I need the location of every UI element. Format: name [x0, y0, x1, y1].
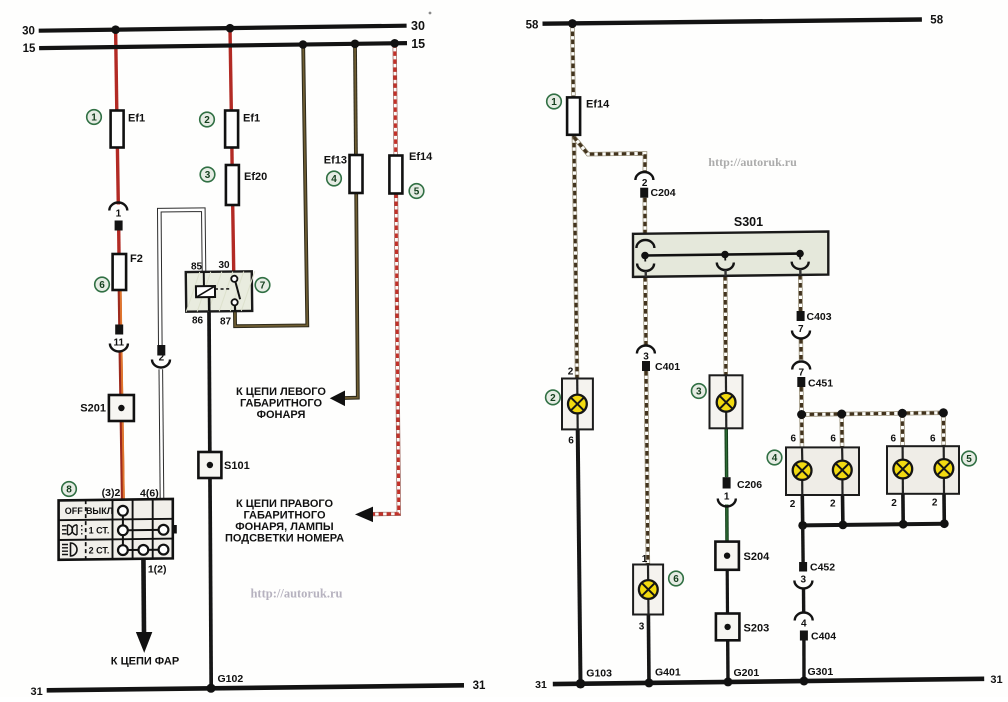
svg-text:3: 3	[205, 170, 211, 181]
svg-text:3: 3	[639, 622, 645, 633]
svg-text:2: 2	[550, 393, 556, 404]
svg-text:S101: S101	[224, 460, 250, 472]
svg-text:ГАБАРИТНОГО: ГАБАРИТНОГО	[243, 509, 325, 521]
svg-text:7: 7	[798, 324, 804, 335]
svg-text:ВЫКЛ: ВЫКЛ	[86, 506, 113, 516]
svg-text:S301: S301	[734, 215, 763, 229]
svg-text:C452: C452	[810, 562, 835, 574]
svg-text:2: 2	[932, 498, 938, 509]
svg-text:1: 1	[551, 97, 557, 108]
svg-text:15: 15	[411, 37, 425, 51]
svg-text:Ef20: Ef20	[244, 171, 267, 183]
svg-text:G103: G103	[586, 668, 612, 680]
svg-text:1: 1	[91, 113, 97, 124]
svg-text:К ЦЕПИ ЛЕВОГО: К ЦЕПИ ЛЕВОГО	[236, 386, 326, 398]
svg-text:Ef13: Ef13	[324, 155, 347, 167]
svg-text:1: 1	[116, 209, 122, 220]
svg-text:31: 31	[473, 680, 486, 692]
svg-text:6: 6	[99, 280, 105, 291]
svg-text:C451: C451	[808, 378, 833, 390]
svg-text:85: 85	[191, 262, 203, 273]
svg-text:G401: G401	[655, 667, 681, 679]
svg-text:5: 5	[414, 187, 420, 198]
svg-text:C404: C404	[811, 631, 836, 643]
svg-text:http://autoruk.ru: http://autoruk.ru	[708, 155, 797, 169]
svg-text:58: 58	[930, 15, 943, 27]
svg-text:1: 1	[724, 491, 730, 502]
svg-text:S204: S204	[744, 551, 771, 563]
svg-text:1: 1	[642, 554, 648, 565]
svg-text:http://autoruk.ru: http://autoruk.ru	[250, 587, 342, 601]
svg-text:3: 3	[643, 352, 649, 363]
svg-text:OFF: OFF	[65, 506, 83, 516]
svg-text:F2: F2	[130, 253, 143, 265]
svg-text:К ЦЕПИ ПРАВОГО: К ЦЕПИ ПРАВОГО	[236, 498, 334, 510]
svg-text:2: 2	[159, 353, 165, 364]
svg-text:Ef14: Ef14	[409, 151, 433, 163]
svg-text:31: 31	[30, 686, 42, 697]
svg-text:2: 2	[568, 366, 574, 377]
svg-text:К ЦЕПИ ФАР: К ЦЕПИ ФАР	[111, 656, 179, 668]
svg-text:G201: G201	[734, 667, 760, 679]
svg-text:6: 6	[673, 574, 679, 585]
svg-text:1 СТ.: 1 СТ.	[89, 526, 110, 536]
svg-text:87: 87	[220, 317, 232, 328]
svg-text:1(2): 1(2)	[148, 563, 167, 575]
svg-text:8: 8	[66, 485, 72, 496]
svg-text:ГАБАРИТНОГО: ГАБАРИТНОГО	[240, 397, 322, 409]
svg-text:86: 86	[192, 316, 204, 327]
svg-text:15: 15	[23, 43, 36, 55]
svg-text:C403: C403	[807, 311, 832, 323]
svg-text:11: 11	[114, 338, 125, 349]
svg-text:58: 58	[526, 19, 539, 31]
svg-text:5: 5	[966, 454, 972, 465]
svg-text:4: 4	[772, 453, 778, 464]
svg-text:4: 4	[801, 619, 807, 630]
svg-text:G301: G301	[808, 666, 834, 678]
svg-text:30: 30	[411, 19, 425, 33]
svg-text:C204: C204	[651, 187, 676, 199]
svg-text:ФОНАРЯ, ЛАМПЫ: ФОНАРЯ, ЛАМПЫ	[235, 521, 334, 533]
svg-text:2: 2	[891, 498, 897, 509]
svg-text:4: 4	[331, 174, 337, 185]
svg-text:2: 2	[830, 499, 836, 510]
svg-text:2: 2	[642, 178, 648, 189]
svg-text:6: 6	[830, 433, 836, 444]
svg-text:31: 31	[990, 674, 1002, 686]
svg-text:6: 6	[930, 433, 936, 444]
svg-text:Ef1: Ef1	[243, 113, 260, 125]
svg-text:31: 31	[535, 679, 547, 691]
svg-text:S203: S203	[744, 622, 770, 634]
svg-text:Ef14: Ef14	[586, 99, 610, 111]
svg-text:C401: C401	[655, 361, 680, 373]
svg-text:2: 2	[790, 499, 796, 510]
svg-text:4(6): 4(6)	[140, 487, 159, 499]
svg-text:6: 6	[568, 436, 574, 447]
svg-text:2 СТ.: 2 СТ.	[89, 545, 110, 555]
svg-text:30: 30	[218, 260, 230, 271]
svg-text:S201: S201	[80, 403, 106, 415]
svg-text:30: 30	[22, 26, 35, 38]
svg-text:6: 6	[791, 433, 797, 444]
svg-text:7: 7	[260, 281, 266, 292]
svg-text:6: 6	[891, 433, 897, 444]
svg-text:G102: G102	[218, 673, 244, 685]
svg-text:3: 3	[696, 387, 702, 398]
svg-text:ПОДСВЕТКИ НОМЕРА: ПОДСВЕТКИ НОМЕРА	[225, 532, 344, 544]
svg-text:ФОНАРЯ: ФОНАРЯ	[257, 409, 306, 421]
svg-text:Ef1: Ef1	[128, 113, 145, 125]
svg-text:2: 2	[204, 115, 210, 126]
svg-text:C206: C206	[737, 479, 762, 491]
svg-text:(3)2: (3)2	[102, 487, 121, 499]
svg-text:3: 3	[801, 575, 807, 586]
